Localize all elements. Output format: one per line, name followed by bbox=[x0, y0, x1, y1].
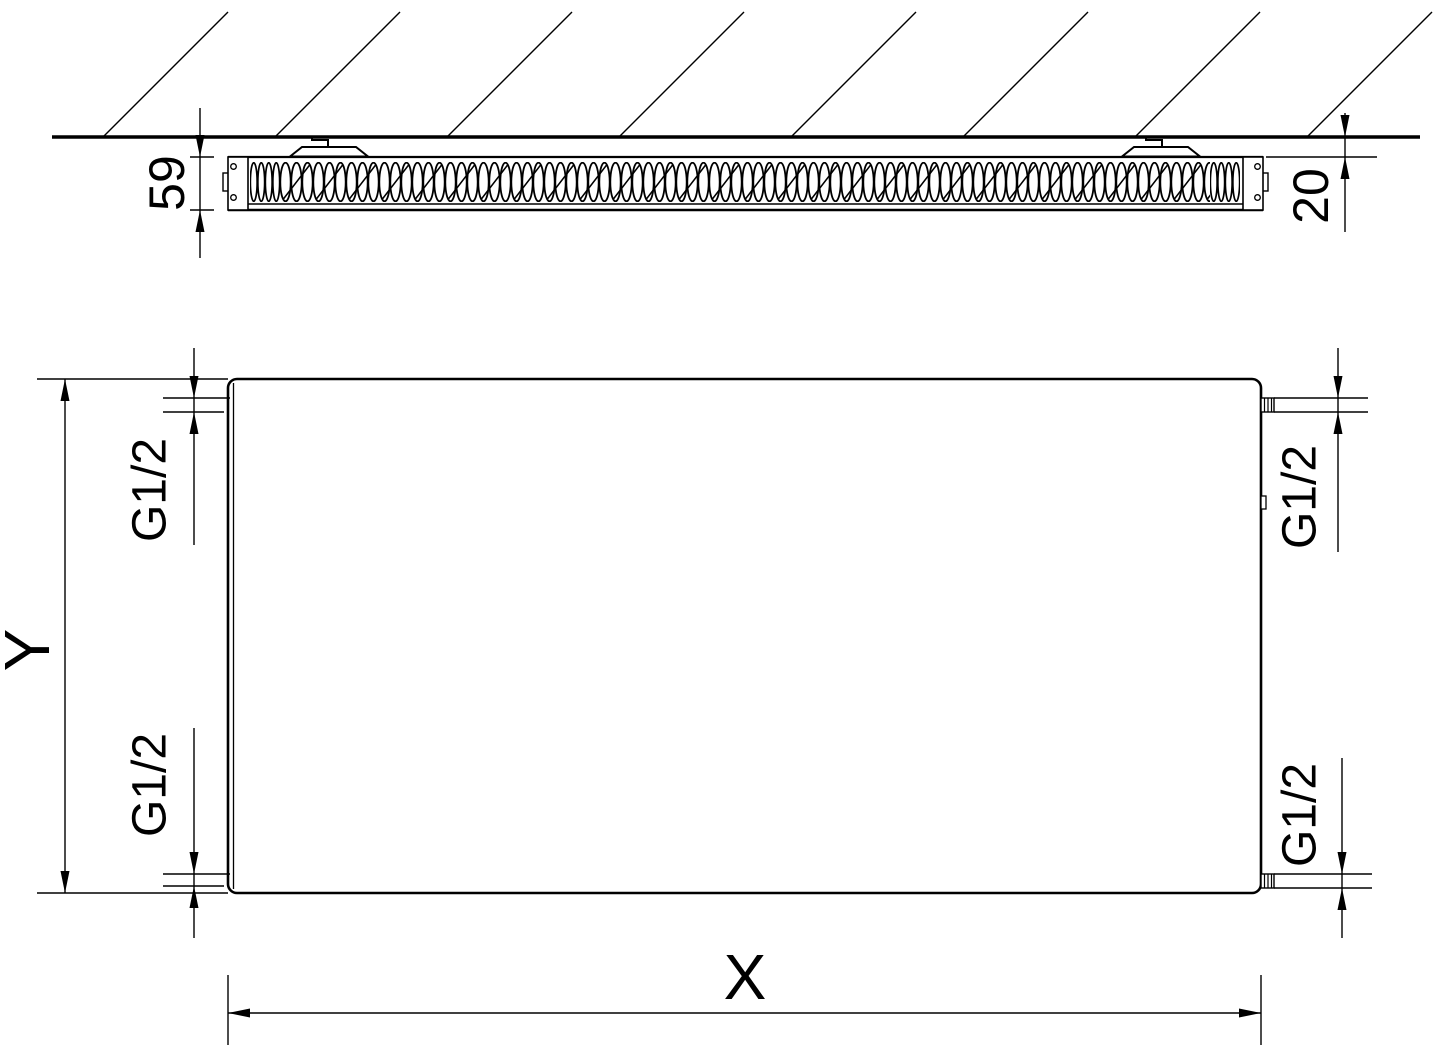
arrowhead-up bbox=[1334, 412, 1343, 434]
dimension-thread-bottom-right: G1/2 bbox=[1274, 758, 1373, 938]
fin-band-left-dense bbox=[250, 162, 280, 202]
hatch-line bbox=[1135, 12, 1260, 137]
hatch-line bbox=[103, 12, 228, 137]
drawing-canvas: 59 20 Y bbox=[0, 0, 1437, 1049]
arrowhead-down bbox=[61, 871, 70, 893]
hatch-line bbox=[1307, 12, 1432, 137]
dimension-thread-top-left: G1/2 bbox=[124, 348, 231, 545]
arrowhead-up bbox=[61, 379, 70, 401]
thread-label-top-right: G1/2 bbox=[1274, 445, 1327, 549]
width-label: X bbox=[724, 941, 767, 1013]
wall-clearance-label: 20 bbox=[1283, 168, 1339, 224]
dimension-width-x: X bbox=[228, 941, 1261, 1045]
end-cap-right bbox=[1243, 157, 1268, 210]
radiator-technical-drawing: 59 20 Y bbox=[0, 0, 1437, 1049]
front-panel-section bbox=[228, 204, 1263, 210]
hatch-line bbox=[619, 12, 744, 137]
dimension-depth: 59 bbox=[139, 108, 214, 258]
connection-nipple-top-right bbox=[1261, 398, 1274, 412]
arrowhead-left bbox=[228, 1009, 250, 1018]
side-tab-mid-right bbox=[1261, 496, 1266, 509]
dimension-wall-clearance: 20 bbox=[1266, 113, 1377, 232]
wall-hatching bbox=[103, 12, 1432, 137]
mounting-bracket-right bbox=[1122, 137, 1200, 157]
height-label: Y bbox=[0, 629, 63, 672]
thread-label-bottom-right: G1/2 bbox=[1274, 763, 1327, 867]
dimension-thread-bottom-left: G1/2 bbox=[124, 728, 231, 938]
hatch-line bbox=[791, 12, 916, 137]
radiator-section-view bbox=[223, 137, 1268, 210]
arrowhead-up bbox=[1341, 157, 1350, 179]
thread-label-bottom-left: G1/2 bbox=[124, 733, 177, 837]
arrowhead-up bbox=[196, 210, 205, 232]
thread-label-top-left: G1/2 bbox=[124, 438, 177, 542]
connection-nipple-bottom-right bbox=[1261, 874, 1274, 888]
hatch-line bbox=[275, 12, 400, 137]
depth-label: 59 bbox=[139, 155, 195, 211]
bracket-right-body bbox=[1122, 147, 1200, 157]
convector-fins bbox=[250, 162, 1240, 202]
arrowhead-right bbox=[1239, 1009, 1261, 1018]
dimension-thread-top-right: G1/2 bbox=[1274, 348, 1369, 552]
arrowhead-up bbox=[190, 412, 199, 434]
arrowhead-up bbox=[190, 886, 199, 908]
mounting-bracket-left bbox=[290, 137, 368, 157]
arrowhead-down bbox=[1341, 115, 1350, 137]
arrowhead-down bbox=[1334, 376, 1343, 398]
fin-band-main bbox=[280, 162, 1210, 202]
arrowhead-down bbox=[190, 852, 199, 874]
arrowhead-down bbox=[190, 376, 199, 398]
end-cap-left bbox=[223, 157, 248, 210]
hatch-line bbox=[447, 12, 572, 137]
panel-outline bbox=[228, 379, 1261, 893]
arrowhead-down bbox=[1338, 852, 1347, 874]
arrowhead-up bbox=[1338, 888, 1347, 910]
radiator-front-view bbox=[228, 379, 1274, 893]
hatch-line bbox=[963, 12, 1088, 137]
bracket-left-body bbox=[290, 147, 368, 157]
arrowhead-down bbox=[196, 135, 205, 157]
fin-band-right-dense bbox=[1210, 162, 1240, 202]
